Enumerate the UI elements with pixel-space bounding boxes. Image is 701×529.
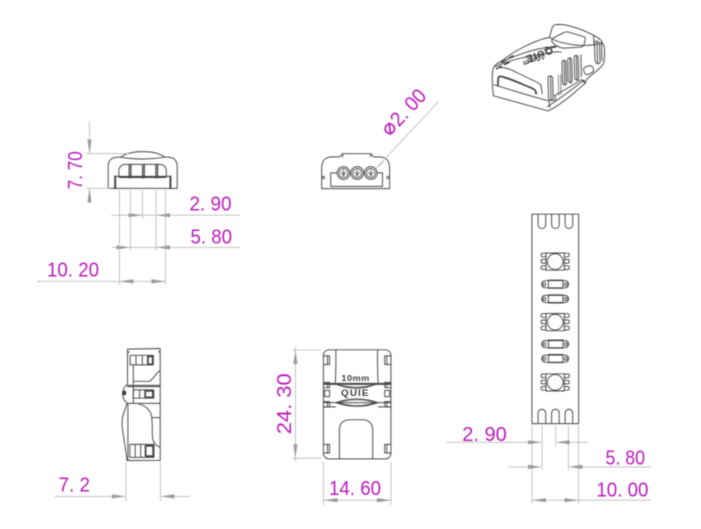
svg-text:24. 30: 24. 30 — [273, 373, 296, 434]
svg-text:QUIE: QUIE — [341, 388, 370, 399]
svg-text:14. 60: 14. 60 — [329, 477, 381, 500]
svg-text:2. 90: 2. 90 — [190, 192, 232, 215]
svg-text:10. 00: 10. 00 — [596, 478, 648, 501]
svg-text:7. 2: 7. 2 — [59, 473, 91, 496]
svg-text:2. 90: 2. 90 — [462, 423, 507, 446]
svg-text:10. 20: 10. 20 — [47, 258, 99, 281]
svg-text:10mm: 10mm — [341, 374, 369, 383]
svg-text:5. 80: 5. 80 — [191, 225, 233, 248]
svg-text:5. 80: 5. 80 — [606, 447, 646, 470]
svg-text:7. 70: 7. 70 — [64, 151, 87, 189]
